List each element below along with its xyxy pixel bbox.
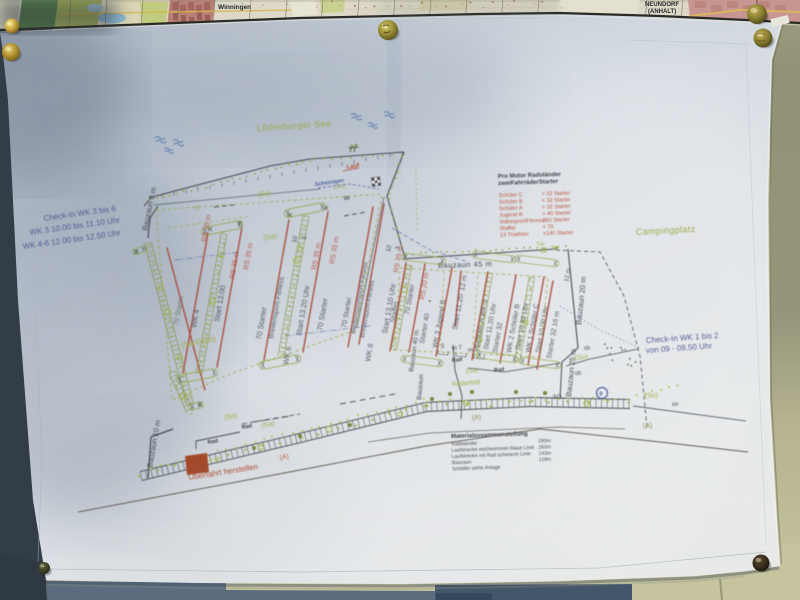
svg-text:(ANHALT): (ANHALT) bbox=[648, 9, 676, 15]
svg-text:✈: ✈ bbox=[598, 391, 604, 398]
svg-text:sb: sb bbox=[584, 345, 591, 352]
svg-text:sb: sb bbox=[575, 370, 582, 377]
svg-text:Winningen: Winningen bbox=[218, 4, 251, 11]
svg-text:Rad: Rad bbox=[452, 357, 463, 364]
svg-text:(A): (A) bbox=[643, 422, 653, 430]
svg-text:so: so bbox=[672, 402, 679, 408]
svg-text:Tür: Tür bbox=[536, 242, 545, 248]
svg-text:NEUNDORF: NEUNDORF bbox=[645, 2, 679, 8]
svg-text:Staffel: Staffel bbox=[500, 226, 516, 233]
svg-text:= 70: = 70 bbox=[543, 224, 554, 230]
svg-text:(So): (So) bbox=[575, 354, 589, 362]
svg-text:m 3: m 3 bbox=[468, 347, 479, 354]
svg-text:(So): (So) bbox=[645, 392, 659, 400]
svg-text:210 Starter: 210 Starter bbox=[542, 217, 570, 224]
svg-text:13 Triathlon: 13 Triathlon bbox=[500, 232, 529, 239]
svg-text:(A): (A) bbox=[471, 414, 481, 422]
svg-text:Rad: Rad bbox=[494, 367, 505, 374]
svg-text:SO: SO bbox=[553, 394, 562, 401]
svg-text:=140 Starter: =140 Starter bbox=[543, 230, 574, 237]
svg-text:119m: 119m bbox=[539, 457, 551, 463]
